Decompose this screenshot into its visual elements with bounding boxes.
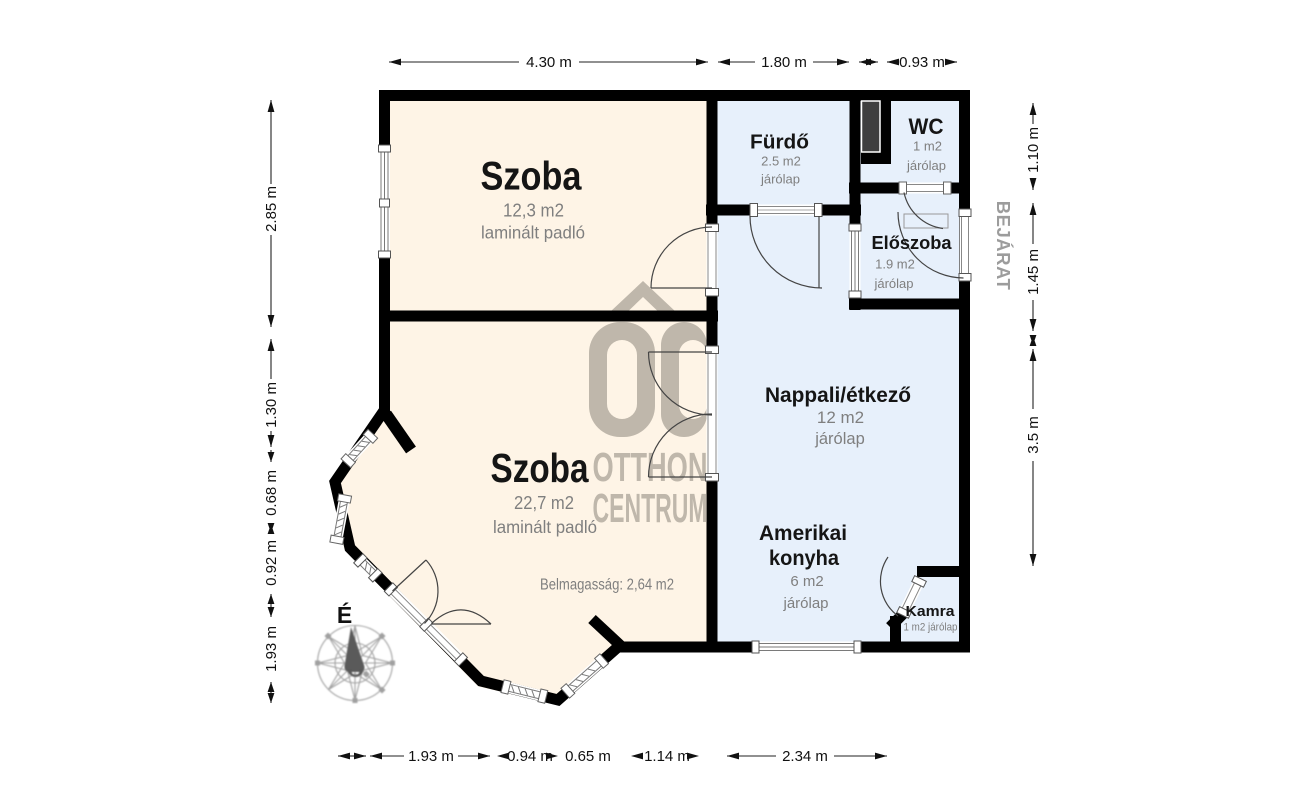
svg-text:12 m2: 12 m2 (817, 408, 864, 427)
svg-text:WC: WC (909, 114, 944, 139)
svg-text:Nappali/étkező: Nappali/étkező (765, 384, 911, 407)
svg-text:OTTHON: OTTHON (593, 444, 708, 490)
svg-text:0.92 m: 0.92 m (263, 540, 280, 586)
svg-text:járólap: járólap (873, 276, 913, 291)
svg-text:2.5 m2: 2.5 m2 (761, 154, 801, 169)
svg-text:6 m2: 6 m2 (790, 573, 823, 590)
svg-text:1.80 m: 1.80 m (761, 54, 807, 71)
svg-text:4.30 m: 4.30 m (526, 54, 572, 71)
svg-text:járólap: járólap (906, 158, 946, 173)
svg-text:1.14 m: 1.14 m (644, 748, 690, 765)
svg-text:laminált padló: laminált padló (481, 223, 585, 243)
svg-text:Belmagasság: 2,64 m2: Belmagasság: 2,64 m2 (540, 577, 674, 594)
svg-text:Előszoba: Előszoba (872, 233, 953, 253)
svg-text:Kamra: Kamra (906, 604, 956, 620)
svg-text:2.85 m: 2.85 m (263, 186, 280, 232)
svg-text:járólap: járólap (782, 595, 828, 612)
svg-text:1.45 m: 1.45 m (1025, 249, 1042, 295)
svg-text:3.5 m: 3.5 m (1025, 416, 1042, 454)
svg-text:BEJÁRAT: BEJÁRAT (993, 201, 1014, 291)
svg-text:Szoba: Szoba (481, 155, 583, 199)
svg-text:1.9 m2: 1.9 m2 (875, 257, 915, 272)
svg-text:22,7 m2: 22,7 m2 (514, 493, 574, 513)
svg-text:1.93 m: 1.93 m (263, 626, 280, 672)
svg-text:0.65 m: 0.65 m (565, 748, 611, 765)
svg-text:1.10 m: 1.10 m (1025, 127, 1042, 173)
svg-text:laminált padló: laminált padló (493, 517, 597, 537)
svg-text:1.93 m: 1.93 m (408, 748, 454, 765)
svg-text:Fürdő: Fürdő (750, 131, 809, 154)
svg-text:járólap: járólap (814, 430, 865, 448)
svg-text:É: É (337, 601, 352, 628)
svg-text:CENTRUM: CENTRUM (593, 485, 708, 531)
svg-text:2.34 m: 2.34 m (782, 748, 828, 765)
svg-text:1 m2 járólap: 1 m2 járólap (904, 622, 958, 634)
svg-text:Amerikai: Amerikai (759, 522, 847, 545)
svg-text:0.93 m: 0.93 m (899, 54, 945, 71)
svg-text:1 m2: 1 m2 (913, 139, 942, 154)
svg-text:konyha: konyha (769, 547, 839, 570)
svg-text:Szoba: Szoba (491, 445, 589, 491)
svg-text:1.30 m: 1.30 m (263, 382, 280, 428)
svg-text:0.68 m: 0.68 m (263, 470, 280, 516)
svg-text:12,3 m2: 12,3 m2 (503, 201, 564, 221)
svg-text:0.94 m: 0.94 m (507, 748, 553, 765)
svg-text:járólap: járólap (760, 172, 800, 187)
